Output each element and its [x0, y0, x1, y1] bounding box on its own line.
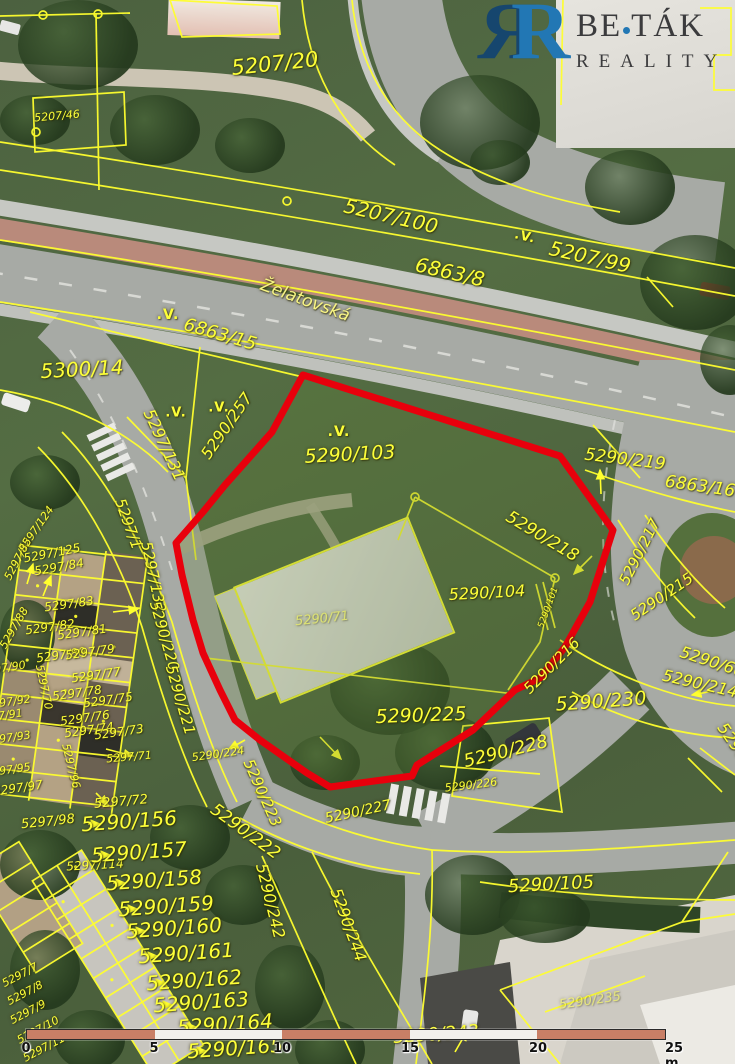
- scale-tick: 20: [529, 1041, 547, 1056]
- survey-mark: .V.: [328, 425, 351, 439]
- parcel-label: 5290/215: [628, 571, 696, 624]
- parcel-label: 5297/97: [0, 779, 44, 798]
- parcel-label: 5290/217: [617, 517, 663, 588]
- parcel-label: 5290/242: [253, 862, 287, 940]
- parcel-label: 5297/98: [20, 813, 75, 832]
- parcel-label: 5290/104: [448, 583, 525, 603]
- parcel-label: 5290/71: [294, 610, 349, 629]
- survey-mark: .V.: [165, 407, 186, 420]
- labels-layer: 5207/465207/205207/1006863/85207/99.V.Že…: [0, 0, 735, 1064]
- street-label: Želatovská: [258, 277, 352, 325]
- scale-bar-segment: [27, 1030, 155, 1039]
- parcel-label: 5297/77: [70, 666, 121, 685]
- parcel-label: 5290/235: [558, 990, 621, 1012]
- parcel-label: 5290/225: [375, 705, 467, 727]
- logo-subtitle: REALITY: [576, 51, 735, 73]
- parcel-label: 5297/96: [60, 742, 82, 789]
- parcel-label: 5297/71: [106, 750, 152, 765]
- parcel-label: 5207/46: [34, 109, 80, 124]
- scale-bar-segment: [410, 1030, 538, 1039]
- logo-monogram-right: R: [511, 0, 570, 72]
- logo-dot-icon: [623, 27, 630, 34]
- logo-name-part1: BE: [576, 8, 622, 44]
- scale-tick: 0: [21, 1041, 30, 1056]
- parcel-label: 5297/93: [0, 729, 31, 746]
- scale-bar-segment: [537, 1030, 665, 1039]
- parcel-label: 5297/83: [43, 595, 94, 614]
- parcel-label: 5290/21: [714, 720, 735, 784]
- logo-text: BETÁK REALITY: [576, 8, 735, 73]
- parcel-label: 5297/91: [0, 707, 23, 724]
- parcel-label: 5290/221: [163, 663, 197, 736]
- parcel-label: 5290/226: [444, 776, 498, 793]
- parcel-label: 5207/99: [547, 238, 632, 276]
- aerial-map: 5207/465207/205207/1006863/85207/99.V.Že…: [0, 0, 735, 1064]
- parcel-label: 5290/157: [91, 839, 188, 866]
- scale-tick: 5: [149, 1041, 158, 1056]
- parcel-label: 5290/220: [147, 599, 181, 672]
- parcel-label: 5297/95: [0, 761, 31, 778]
- agency-logo: R R BETÁK REALITY: [478, 2, 734, 92]
- logo-name: BETÁK: [576, 8, 735, 45]
- parcel-label: 5290/223: [241, 757, 284, 829]
- parcel-label: 6863/8: [413, 254, 486, 289]
- survey-mark: .V.: [157, 308, 180, 322]
- parcel-label: 5290/160: [126, 915, 223, 942]
- scale-bar-segment: [155, 1030, 283, 1039]
- survey-mark: .V.: [513, 228, 537, 245]
- parcel-label: 5290/105: [507, 874, 594, 896]
- scale-bar-segments: [26, 1029, 666, 1040]
- parcel-label: 5290/228: [462, 733, 550, 771]
- parcel-label: 5290/103: [304, 443, 396, 467]
- parcel-label: 5290/161: [138, 940, 235, 967]
- parcel-label: 5300/14: [40, 357, 124, 381]
- parcel-label: 5290/218: [503, 509, 582, 566]
- parcel-label: 6863/15: [182, 316, 259, 354]
- parcel-label: 5290/156: [81, 808, 178, 835]
- parcel-label: 5290/101: [537, 586, 560, 630]
- parcel-label: 5297/90: [0, 659, 26, 676]
- parcel-label: 5290/219: [584, 447, 667, 474]
- parcel-label: 5290/216: [521, 635, 582, 696]
- parcel-label: 5207/100: [342, 195, 440, 236]
- scale-bar: 0510152025 m: [26, 1029, 666, 1061]
- scale-tick: 10: [273, 1041, 291, 1056]
- logo-name-part2: TÁK: [631, 8, 705, 44]
- parcel-label: 5290/158: [106, 867, 203, 894]
- parcel-label: 5297/70: [34, 664, 54, 711]
- scale-tick: 15: [401, 1041, 419, 1056]
- parcel-label: 5290/244: [327, 886, 368, 964]
- parcel-label: 5290/224: [191, 745, 245, 763]
- scale-bar-segment: [282, 1030, 410, 1039]
- parcel-label: 6863/16: [664, 474, 735, 501]
- scale-tick: 25 m: [665, 1041, 683, 1064]
- parcel-label: 5290/227: [324, 798, 393, 826]
- parcel-label: 5290/230: [555, 689, 647, 714]
- parcel-label: 5207/20: [231, 49, 320, 79]
